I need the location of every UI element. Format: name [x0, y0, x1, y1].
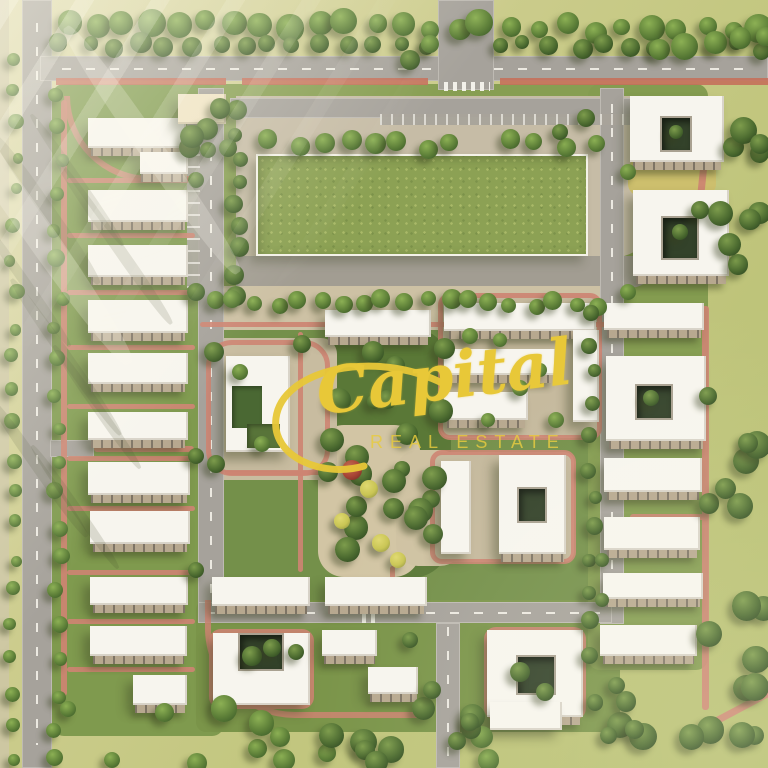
tree — [421, 291, 436, 306]
tree — [543, 291, 562, 310]
tree — [515, 35, 529, 49]
tree — [182, 37, 202, 57]
tree — [586, 517, 603, 534]
tree — [8, 114, 24, 130]
tree — [5, 382, 19, 396]
tree — [581, 611, 599, 629]
tree — [207, 455, 225, 473]
tree — [187, 753, 207, 768]
tree — [7, 454, 22, 469]
tree — [214, 36, 230, 52]
tree — [60, 701, 76, 717]
tree — [293, 335, 311, 353]
bike-lane — [56, 78, 226, 85]
tree — [369, 14, 387, 32]
tree — [730, 27, 751, 48]
tree — [3, 650, 16, 663]
tree — [728, 254, 749, 275]
tree — [501, 129, 521, 149]
tree — [46, 749, 64, 767]
tree — [718, 233, 741, 256]
apartment-building — [88, 353, 188, 384]
terrace-strip — [603, 656, 694, 664]
tree — [502, 17, 522, 37]
road — [22, 0, 52, 768]
tree — [254, 436, 270, 452]
apartment-building — [368, 667, 418, 694]
tree — [219, 139, 237, 157]
tree — [691, 201, 709, 219]
tree — [620, 164, 636, 180]
tree — [4, 348, 18, 362]
tree — [573, 39, 593, 59]
terrace-strip — [636, 276, 726, 284]
tree — [434, 338, 455, 359]
tree — [440, 134, 457, 151]
tree — [533, 363, 547, 377]
bike-lane — [500, 78, 768, 85]
tree — [625, 720, 644, 739]
tree — [320, 428, 344, 452]
tree — [708, 201, 734, 227]
tree — [335, 537, 360, 562]
terrace-strip — [215, 606, 307, 614]
tree — [478, 749, 499, 768]
walkway — [67, 667, 195, 672]
sports-field — [256, 154, 588, 256]
tree — [462, 328, 478, 344]
tree — [47, 389, 61, 403]
tree — [283, 37, 299, 53]
tree — [589, 491, 602, 504]
tree — [340, 36, 358, 54]
tree — [739, 209, 761, 231]
tree — [335, 296, 352, 313]
aerial-site-plan — [0, 0, 768, 768]
tree — [273, 749, 295, 768]
tree — [6, 581, 20, 595]
tree — [577, 109, 595, 127]
tree — [180, 125, 203, 148]
walkway — [67, 345, 195, 350]
tree — [510, 662, 530, 682]
tree — [412, 697, 435, 720]
tree — [390, 552, 406, 568]
walkway — [67, 619, 195, 624]
walkway — [67, 404, 195, 409]
tree — [3, 618, 16, 631]
tree — [582, 586, 596, 600]
tree — [738, 433, 758, 453]
tree — [699, 493, 720, 514]
tree — [342, 130, 362, 150]
tree — [365, 133, 386, 154]
apartment-building — [604, 517, 700, 550]
walkway — [67, 570, 195, 575]
tree — [639, 15, 666, 42]
tree — [242, 646, 262, 666]
tree — [105, 39, 123, 57]
tree — [404, 506, 428, 530]
apartment-building — [322, 630, 377, 656]
tree — [153, 37, 173, 57]
tree — [109, 11, 134, 36]
tree — [53, 423, 65, 435]
terrace-strip — [609, 441, 703, 449]
tree — [732, 591, 762, 621]
tree — [104, 752, 120, 768]
walkway — [67, 233, 195, 238]
tree — [327, 388, 351, 412]
tree — [400, 50, 420, 70]
tree — [50, 187, 64, 201]
tree — [583, 305, 598, 320]
tree — [649, 39, 670, 60]
tree — [613, 19, 630, 36]
tree — [372, 534, 390, 552]
apartment-building — [90, 577, 188, 605]
tree — [195, 10, 215, 30]
road — [50, 440, 94, 457]
tree — [536, 683, 554, 701]
tree — [581, 338, 596, 353]
terrace-strip — [328, 606, 424, 614]
tree — [130, 32, 151, 53]
tree — [742, 646, 768, 673]
tree — [461, 713, 479, 731]
tree — [248, 739, 267, 758]
tree — [672, 224, 688, 240]
masterplan-render: Capital REAL ESTATE — [0, 0, 768, 768]
tree — [588, 364, 601, 377]
tree — [9, 514, 21, 526]
tree — [600, 727, 617, 744]
tree — [750, 134, 768, 155]
tree — [48, 88, 62, 102]
tree — [204, 342, 224, 362]
tree — [378, 390, 397, 409]
tree — [581, 647, 598, 664]
tree — [421, 35, 439, 53]
apartment-building — [212, 577, 310, 606]
tree — [696, 621, 723, 648]
courtyard-building — [499, 455, 566, 554]
terrace-strip — [91, 384, 185, 392]
tree — [392, 12, 416, 36]
apartment-building — [325, 577, 427, 606]
tree — [595, 593, 609, 607]
tree — [188, 448, 204, 464]
tree — [669, 125, 683, 139]
tree — [493, 333, 507, 347]
terrace-strip — [607, 550, 697, 558]
apartment-building — [604, 303, 704, 330]
tree — [582, 554, 595, 567]
tree — [493, 38, 508, 53]
tree — [557, 138, 575, 156]
tree — [54, 652, 68, 666]
tree — [200, 142, 216, 158]
courtyard — [517, 487, 547, 523]
tree — [548, 412, 564, 428]
tree — [346, 496, 367, 517]
crosswalk — [444, 82, 490, 91]
tree — [247, 13, 271, 37]
tree — [371, 289, 390, 308]
terrace-strip — [91, 440, 185, 448]
tree — [594, 34, 612, 52]
tree — [87, 14, 111, 38]
tree — [557, 12, 579, 34]
tree — [429, 399, 453, 423]
green-roof — [232, 386, 262, 428]
tree — [448, 732, 466, 750]
tree — [238, 37, 255, 54]
tree — [258, 35, 275, 52]
tree — [334, 513, 350, 529]
tree — [481, 413, 495, 427]
tree — [188, 562, 204, 578]
terrace-strip — [501, 554, 564, 562]
apartment-building — [90, 626, 187, 656]
tree — [270, 727, 290, 747]
tree — [207, 291, 224, 308]
tree — [580, 463, 596, 479]
tree — [643, 390, 659, 406]
tree — [395, 37, 409, 51]
tree — [608, 677, 626, 695]
terrace-strip — [607, 330, 701, 338]
tree — [704, 31, 726, 53]
apartment-building — [603, 573, 703, 599]
terrace-strip — [93, 605, 185, 613]
tree — [360, 480, 378, 498]
tree — [620, 284, 636, 300]
terrace-strip — [93, 656, 184, 664]
tree — [52, 616, 69, 633]
tree — [512, 380, 528, 396]
tree — [319, 723, 344, 748]
tree — [232, 364, 248, 380]
tree — [552, 124, 568, 140]
tree — [402, 632, 418, 648]
tree — [155, 703, 174, 722]
tree — [581, 427, 597, 443]
tree — [222, 11, 246, 35]
terrace-strip — [324, 656, 376, 664]
terrace-strip — [607, 492, 699, 500]
tree — [263, 639, 281, 657]
tree — [315, 133, 335, 153]
tree — [272, 298, 288, 314]
tree — [5, 687, 20, 702]
terrace-strip — [633, 162, 721, 170]
tree — [364, 36, 381, 53]
tree — [616, 691, 636, 711]
bike-lane — [242, 78, 428, 85]
tree — [6, 84, 19, 97]
terrace-strip — [91, 495, 187, 503]
apartment-building — [604, 458, 702, 492]
tree — [318, 462, 338, 482]
tree — [423, 681, 441, 699]
tree — [382, 469, 406, 493]
terrace-strip — [606, 599, 700, 607]
tree — [587, 694, 603, 710]
tree — [231, 217, 248, 234]
tree — [291, 137, 310, 156]
tree — [167, 12, 193, 38]
tree — [7, 53, 20, 66]
tree — [6, 718, 20, 732]
tree — [699, 387, 718, 406]
apartment-building — [90, 511, 190, 544]
tree — [365, 751, 388, 768]
tree — [8, 754, 20, 766]
tree — [539, 36, 557, 54]
tree — [362, 341, 384, 363]
tree — [187, 283, 205, 301]
tree — [288, 644, 304, 660]
tree — [52, 521, 68, 537]
tree — [288, 291, 306, 309]
tree — [588, 135, 605, 152]
tree — [595, 553, 609, 567]
tree — [10, 324, 22, 336]
apartment-building — [600, 625, 697, 656]
tree — [621, 38, 640, 57]
apartment-building — [133, 675, 187, 705]
tree — [9, 484, 22, 497]
apartment-building — [490, 702, 562, 730]
tree — [210, 98, 231, 119]
tree — [46, 723, 61, 738]
plaza — [236, 256, 660, 288]
terrace-strip — [370, 694, 417, 702]
tree — [310, 34, 329, 53]
tree — [11, 556, 22, 567]
tree — [330, 8, 356, 34]
apartment-building — [325, 310, 431, 337]
tree — [679, 724, 704, 749]
tree — [386, 356, 405, 375]
tree — [342, 460, 362, 480]
tree — [741, 673, 768, 701]
